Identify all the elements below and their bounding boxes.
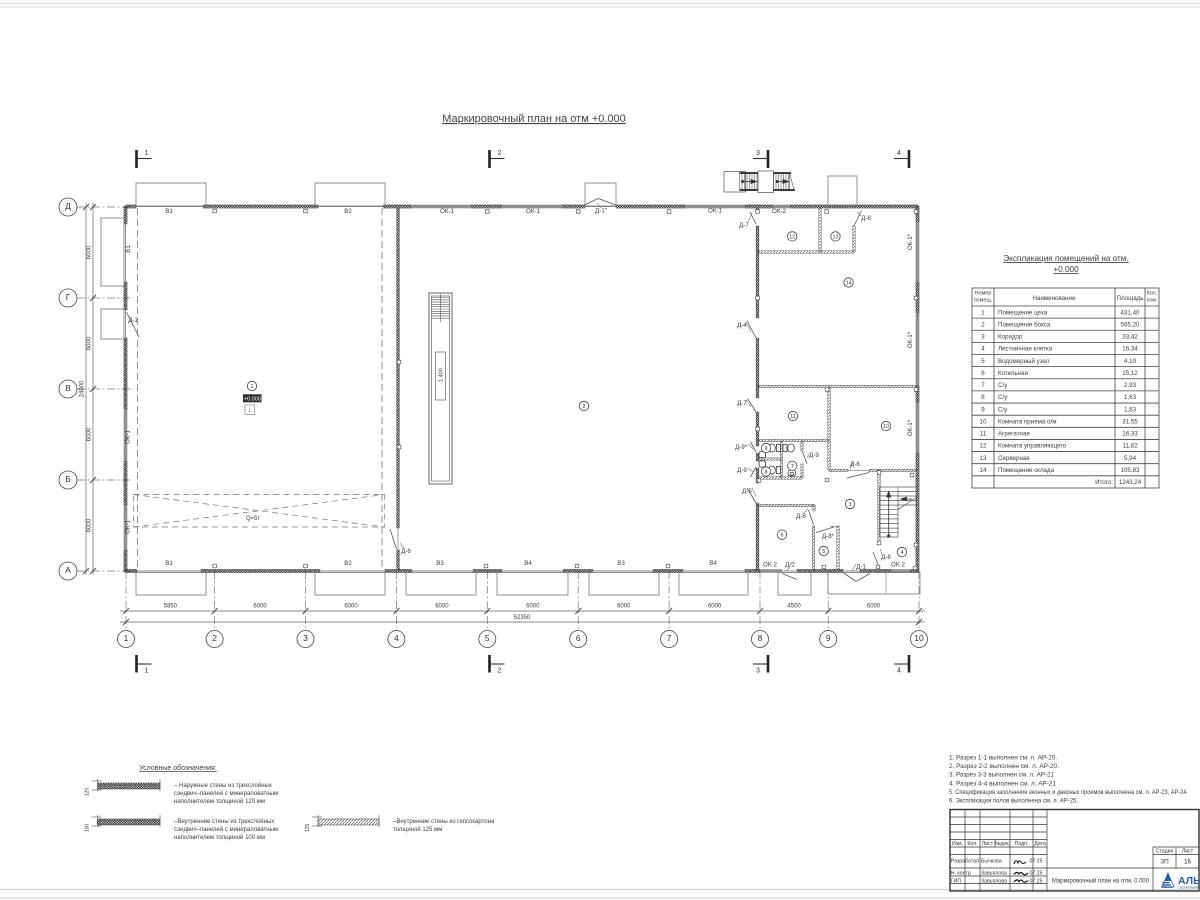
svg-text:ОК-2: ОК-2 bbox=[891, 562, 905, 569]
svg-text:105,83: 105,83 bbox=[1121, 467, 1140, 474]
svg-text:Д-5: Д-5 bbox=[742, 488, 752, 495]
svg-text:Кол.: Кол. bbox=[967, 841, 977, 847]
svg-text:В2: В2 bbox=[344, 208, 352, 215]
svg-text:Д: Д bbox=[65, 201, 71, 211]
svg-text:Наименование: Наименование bbox=[1033, 295, 1076, 302]
svg-text:В4: В4 bbox=[524, 560, 532, 567]
svg-text:6000: 6000 bbox=[87, 336, 93, 350]
svg-text:Серверная: Серверная bbox=[998, 455, 1030, 462]
svg-text:Итого:: Итого: bbox=[1095, 479, 1113, 486]
svg-text:Д-1: Д-1 bbox=[856, 564, 866, 571]
svg-text:9: 9 bbox=[826, 633, 831, 643]
svg-text:4,10: 4,10 bbox=[1124, 358, 1137, 365]
svg-text:пом.: пом. bbox=[1147, 298, 1158, 304]
svg-text:565,20: 565,20 bbox=[1121, 321, 1140, 328]
svg-text:ОК-2: ОК-2 bbox=[772, 208, 786, 215]
svg-text:1,63: 1,63 bbox=[1124, 394, 1137, 401]
svg-text:9: 9 bbox=[981, 406, 985, 413]
svg-text:431,40: 431,40 bbox=[1121, 309, 1140, 316]
svg-text:5: 5 bbox=[485, 633, 490, 643]
svg-text:Д-7: Д-7 bbox=[737, 400, 747, 407]
svg-text:сэндвич–панелей с минераловатн: сэндвич–панелей с минераловатным bbox=[174, 790, 278, 797]
svg-text:Д-9*: Д-9* bbox=[735, 444, 748, 451]
svg-text:6000: 6000 bbox=[87, 518, 93, 532]
svg-text:наполнителем толщиной 100 мм: наполнителем толщиной 100 мм bbox=[174, 834, 265, 841]
svg-text:2: 2 bbox=[498, 150, 502, 157]
svg-text:6000: 6000 bbox=[253, 604, 267, 610]
svg-text:А: А bbox=[65, 565, 71, 575]
svg-text:3: 3 bbox=[849, 502, 852, 508]
svg-text:-1.400: -1.400 bbox=[439, 368, 445, 384]
svg-text:Д-4: Д-4 bbox=[737, 322, 747, 329]
svg-text:4: 4 bbox=[901, 550, 904, 556]
svg-text:Площадь: Площадь bbox=[1117, 295, 1144, 302]
svg-text:3: 3 bbox=[756, 668, 760, 675]
svg-text:07.25: 07.25 bbox=[1030, 871, 1043, 877]
svg-text:1: 1 bbox=[145, 150, 149, 157]
svg-text:строительная комп: строительная комп bbox=[1178, 886, 1200, 890]
svg-text:В1: В1 bbox=[165, 208, 173, 215]
svg-text:Комната приема о/м: Комната приема о/м bbox=[998, 418, 1056, 425]
svg-text:Н. контр: Н. контр bbox=[951, 871, 971, 877]
svg-text:Д-7: Д-7 bbox=[739, 222, 749, 229]
svg-text:Д-6: Д-6 bbox=[881, 554, 891, 561]
svg-text:Д-9: Д-9 bbox=[809, 452, 819, 459]
svg-text:3: 3 bbox=[756, 150, 760, 157]
svg-text:В3: В3 bbox=[617, 560, 625, 567]
svg-text:В1: В1 bbox=[125, 245, 132, 253]
svg-text:Комната управляющего: Комната управляющего bbox=[998, 443, 1067, 450]
svg-text:ОК-1*: ОК-1* bbox=[907, 331, 914, 348]
svg-text:Помещение склада: Помещение склада bbox=[998, 467, 1055, 474]
svg-text:Котельная: Котельная bbox=[998, 370, 1028, 377]
svg-text:С/у: С/у bbox=[998, 394, 1008, 401]
svg-text:3. Разрез 3-3 выполнен см. л.: 3. Разрез 3-3 выполнен см. л. АР-21 bbox=[949, 772, 1054, 779]
svg-text:№док.: №док. bbox=[995, 841, 1010, 847]
svg-text:В1: В1 bbox=[165, 560, 173, 567]
svg-text:1: 1 bbox=[251, 384, 254, 390]
svg-text:–Внутренние стены из трехслойн: –Внутренние стены из трехслойных bbox=[174, 818, 274, 825]
svg-text:7: 7 bbox=[981, 382, 985, 389]
svg-text:Завьялова: Завьялова bbox=[981, 871, 1007, 877]
svg-text:Водомерный узел: Водомерный узел bbox=[998, 358, 1050, 365]
svg-text:4500: 4500 bbox=[787, 604, 801, 610]
svg-text:3: 3 bbox=[303, 633, 308, 643]
svg-text:Завьялова: Завьялова bbox=[981, 878, 1007, 884]
svg-text:С/у: С/у bbox=[998, 382, 1008, 389]
svg-text:ОК-1*: ОК-1* bbox=[907, 233, 914, 250]
svg-text:+0.000: +0.000 bbox=[1053, 265, 1079, 274]
svg-text:6000: 6000 bbox=[526, 604, 540, 610]
svg-text:31,55: 31,55 bbox=[1122, 418, 1138, 425]
svg-text:сэндвич–панелей с минераловатн: сэндвич–панелей с минераловатным bbox=[174, 826, 278, 833]
svg-text:Подп.: Подп. bbox=[1015, 841, 1029, 847]
svg-text:Д-8: Д-8 bbox=[861, 215, 871, 222]
svg-text:помещ.: помещ. bbox=[974, 298, 993, 304]
svg-text:Коридор: Коридор bbox=[998, 334, 1023, 341]
svg-text:Помещение цеха: Помещение цеха bbox=[998, 309, 1048, 316]
svg-text:Дата: Дата bbox=[1034, 841, 1046, 847]
svg-text:5: 5 bbox=[822, 549, 825, 555]
svg-text:3: 3 bbox=[981, 334, 985, 341]
svg-text:– Наружные стены из трехслойны: – Наружные стены из трехслойных bbox=[174, 782, 272, 789]
svg-text:1: 1 bbox=[981, 309, 985, 316]
svg-text:Лестничная клетка: Лестничная клетка bbox=[998, 346, 1053, 353]
svg-text:толщиной 125 мм: толщиной 125 мм bbox=[393, 826, 442, 833]
svg-text:6000: 6000 bbox=[867, 604, 881, 610]
svg-text:16,33: 16,33 bbox=[1122, 431, 1138, 438]
svg-text:Маркировочный план на отм +0.0: Маркировочный план на отм +0.000 bbox=[442, 113, 626, 125]
svg-text:4: 4 bbox=[897, 150, 901, 157]
svg-text:2: 2 bbox=[212, 633, 217, 643]
svg-text:9: 9 bbox=[765, 446, 768, 452]
svg-text:Стадия: Стадия bbox=[1156, 849, 1174, 855]
svg-text:6. Экспликация полов выполнена: 6. Экспликация полов выполнена см. л. АР… bbox=[949, 798, 1078, 805]
svg-text:ОК-1*: ОК-1* bbox=[907, 419, 914, 436]
svg-text:5: 5 bbox=[981, 358, 985, 365]
svg-text:8: 8 bbox=[765, 470, 768, 476]
svg-text:07.25: 07.25 bbox=[1030, 859, 1043, 865]
svg-text:2,93: 2,93 bbox=[1124, 382, 1137, 389]
svg-text:ОК-1: ОК-1 bbox=[125, 519, 132, 533]
svg-text:Д-1": Д-1" bbox=[595, 208, 607, 215]
svg-text:Изм.: Изм. bbox=[952, 841, 963, 847]
svg-text:Д-8*: Д-8* bbox=[822, 533, 835, 540]
svg-text:ГИП: ГИП bbox=[951, 878, 962, 884]
svg-text:Б: Б bbox=[65, 474, 71, 484]
svg-text:5,94: 5,94 bbox=[1124, 455, 1137, 462]
svg-text:6: 6 bbox=[981, 370, 985, 377]
svg-text:16,34: 16,34 bbox=[1122, 346, 1138, 353]
svg-text:ЗП: ЗП bbox=[1160, 859, 1169, 866]
svg-text:1. Разрез 1-1 выполнен см. л.: 1. Разрез 1-1 выполнен см. л. АР-20. bbox=[949, 755, 1057, 762]
svg-text:14: 14 bbox=[846, 281, 852, 287]
svg-text:В2: В2 bbox=[344, 560, 352, 567]
svg-text:Маркировочный план на отм. 0.0: Маркировочный план на отм. 0.000 bbox=[1052, 877, 1149, 885]
svg-text:Кол.: Кол. bbox=[1147, 291, 1157, 297]
svg-text:Бычкова: Бычкова bbox=[981, 859, 1002, 865]
svg-text:120: 120 bbox=[85, 788, 91, 797]
svg-text:Д-9: Д-9 bbox=[737, 467, 747, 474]
svg-text:15,12: 15,12 bbox=[1122, 370, 1138, 377]
svg-text:Г: Г bbox=[66, 292, 71, 302]
svg-text:6000: 6000 bbox=[87, 427, 93, 441]
svg-text:4: 4 bbox=[897, 668, 901, 675]
svg-text:2: 2 bbox=[498, 668, 502, 675]
svg-text:6000: 6000 bbox=[435, 604, 449, 610]
svg-text:12: 12 bbox=[980, 443, 987, 450]
svg-text:8: 8 bbox=[981, 394, 985, 401]
svg-text:6000: 6000 bbox=[708, 604, 722, 610]
svg-text:Лист: Лист bbox=[1182, 849, 1194, 855]
svg-text:13: 13 bbox=[980, 455, 987, 462]
svg-text:В4: В4 bbox=[709, 560, 717, 567]
svg-text:6000: 6000 bbox=[87, 245, 93, 259]
svg-text:24000: 24000 bbox=[80, 380, 86, 397]
svg-text:100: 100 bbox=[85, 824, 91, 833]
svg-text:2. Разрез 2-2 выполнен см. л.: 2. Разрез 2-2 выполнен см. л. АР-20. bbox=[949, 763, 1059, 770]
svg-text:Помещение бокса: Помещение бокса bbox=[998, 321, 1051, 328]
svg-text:4: 4 bbox=[981, 346, 985, 353]
svg-text:10: 10 bbox=[883, 424, 889, 430]
svg-text:11,82: 11,82 bbox=[1122, 443, 1138, 450]
svg-text:+0.000: +0.000 bbox=[244, 397, 261, 403]
svg-text:В: В bbox=[65, 383, 71, 393]
svg-text:14: 14 bbox=[980, 467, 987, 474]
svg-text:4: 4 bbox=[394, 633, 399, 643]
svg-text:7: 7 bbox=[791, 464, 794, 470]
svg-text:16: 16 bbox=[1184, 859, 1192, 866]
svg-text:6000: 6000 bbox=[344, 604, 358, 610]
svg-text:наполнителем толщиной 120 мм: наполнителем толщиной 120 мм bbox=[174, 798, 265, 805]
svg-text:8: 8 bbox=[758, 633, 763, 643]
svg-text:12: 12 bbox=[789, 235, 795, 241]
svg-text:2: 2 bbox=[981, 321, 985, 328]
svg-text:Экспликация помещений на отм.: Экспликация помещений на отм. bbox=[1003, 254, 1128, 263]
svg-text:Агрегатная: Агрегатная bbox=[998, 431, 1030, 438]
svg-text:1243,24: 1243,24 bbox=[1119, 479, 1142, 486]
svg-text:13: 13 bbox=[833, 235, 839, 241]
svg-text:5. Спецификация заполнения око: 5. Спецификация заполнения оконных и две… bbox=[949, 789, 1188, 796]
svg-text:В3: В3 bbox=[436, 560, 444, 567]
svg-text:2: 2 bbox=[583, 404, 586, 410]
svg-text:ОК-2: ОК-2 bbox=[763, 562, 777, 569]
svg-text:1: 1 bbox=[124, 633, 129, 643]
svg-text:–Внутренние стены из гипсокарт: –Внутренние стены из гипсокартона bbox=[393, 819, 495, 825]
svg-text:52350: 52350 bbox=[514, 615, 531, 621]
svg-text:5850: 5850 bbox=[164, 604, 178, 610]
svg-text:6: 6 bbox=[781, 533, 784, 539]
svg-text:ОК-1: ОК-1 bbox=[526, 208, 540, 215]
svg-text:1: 1 bbox=[145, 668, 149, 675]
svg-text:07.25: 07.25 bbox=[1030, 878, 1043, 884]
svg-text:7: 7 bbox=[667, 633, 672, 643]
svg-text:6000: 6000 bbox=[617, 604, 631, 610]
svg-text:Номер: Номер bbox=[975, 291, 992, 297]
svg-text:С/у: С/у bbox=[998, 406, 1008, 413]
svg-text:Д-1: Д-1 bbox=[128, 317, 138, 324]
svg-text:11: 11 bbox=[980, 431, 987, 438]
svg-text:Разработал: Разработал bbox=[951, 859, 979, 865]
svg-text:ОК-1: ОК-1 bbox=[708, 208, 722, 215]
svg-text:11: 11 bbox=[790, 414, 796, 420]
svg-text:Условные обозначения:: Условные обозначения: bbox=[139, 764, 217, 772]
svg-text:ОК-1: ОК-1 bbox=[440, 208, 454, 215]
svg-text:33,42: 33,42 bbox=[1122, 334, 1138, 341]
svg-text:Q=5т: Q=5т bbox=[246, 516, 261, 522]
svg-text:125: 125 bbox=[305, 824, 311, 833]
svg-text:Д-6: Д-6 bbox=[401, 548, 411, 555]
svg-text:10: 10 bbox=[980, 418, 987, 425]
svg-text:Д-8: Д-8 bbox=[796, 513, 806, 520]
svg-text:ОК-1: ОК-1 bbox=[125, 429, 132, 443]
svg-text:1,63: 1,63 bbox=[1124, 406, 1137, 413]
svg-text:10: 10 bbox=[914, 633, 924, 643]
svg-text:4. Разрез 4-4 выполнен см. л.: 4. Разрез 4-4 выполнен см. л. АР-21 bbox=[949, 780, 1056, 787]
svg-text:Лист: Лист bbox=[982, 841, 994, 847]
svg-text:6: 6 bbox=[576, 633, 581, 643]
